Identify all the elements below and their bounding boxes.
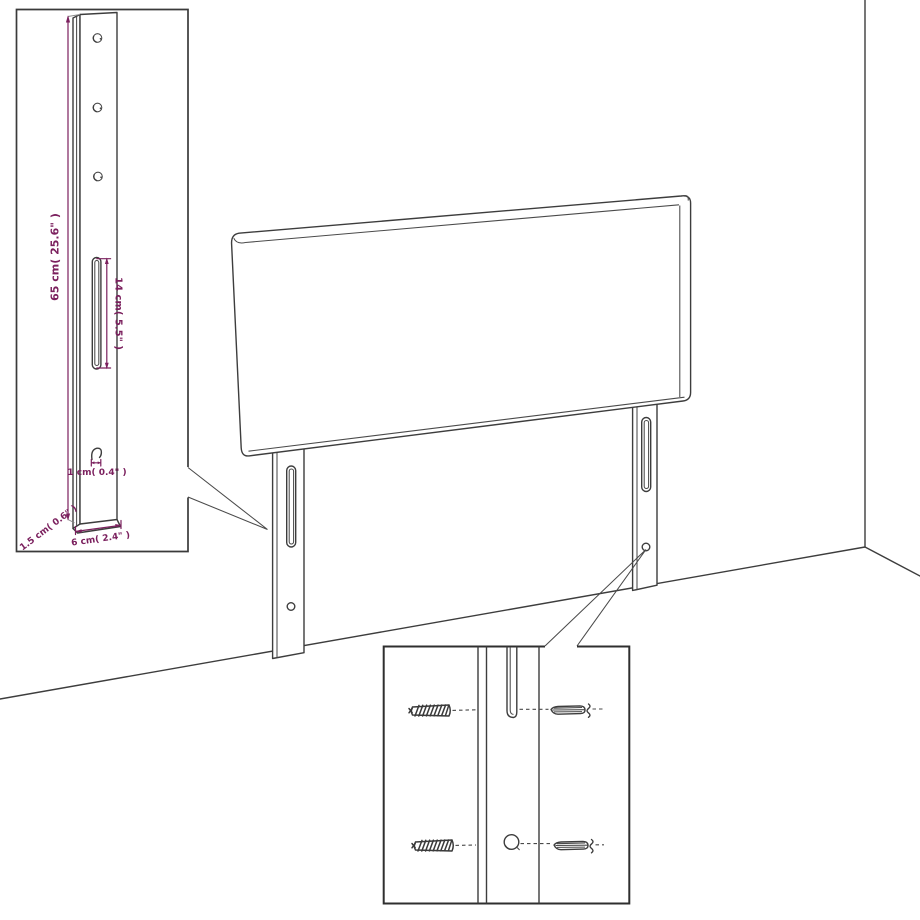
leg-strip-front-view <box>478 647 539 903</box>
headboard-panel <box>232 195 691 455</box>
leg-detail-inset: 65 cm( 25.6" ) 14 cm( 5.5" ) 1 cm( 0.4" … <box>17 10 189 554</box>
wall-plug-icon <box>412 840 453 851</box>
headboard-leg-right <box>633 394 657 591</box>
leader-lines-left-leg <box>188 468 268 530</box>
dimension-label-thickness: 1.5 cm( 0.6" ) <box>18 504 79 553</box>
dimension-thickness: 1.5 cm( 0.6" ) <box>18 504 79 553</box>
screw-icon <box>554 840 593 853</box>
floor-wall-line <box>0 547 920 699</box>
screw-icon <box>551 704 590 717</box>
product-diagram: 65 cm( 25.6" ) 14 cm( 5.5" ) 1 cm( 0.4" … <box>0 0 920 920</box>
leg-strip-drawing <box>73 13 121 534</box>
headboard-leg-left <box>273 441 304 659</box>
dimension-label-slot-length: 14 cm( 5.5" ) <box>113 277 124 350</box>
alignment-dashed-lines <box>453 709 605 845</box>
dimension-label-height: 65 cm( 25.6" ) <box>49 213 62 301</box>
mounting-detail-inset <box>384 647 630 904</box>
wall-plug-icon <box>409 705 450 716</box>
leader-lines-right-leg <box>545 550 646 647</box>
technical-diagram-canvas: 65 cm( 25.6" ) 14 cm( 5.5" ) 1 cm( 0.4" … <box>0 0 920 920</box>
dimension-label-hook-depth: 1 cm( 0.4" ) <box>67 468 126 478</box>
